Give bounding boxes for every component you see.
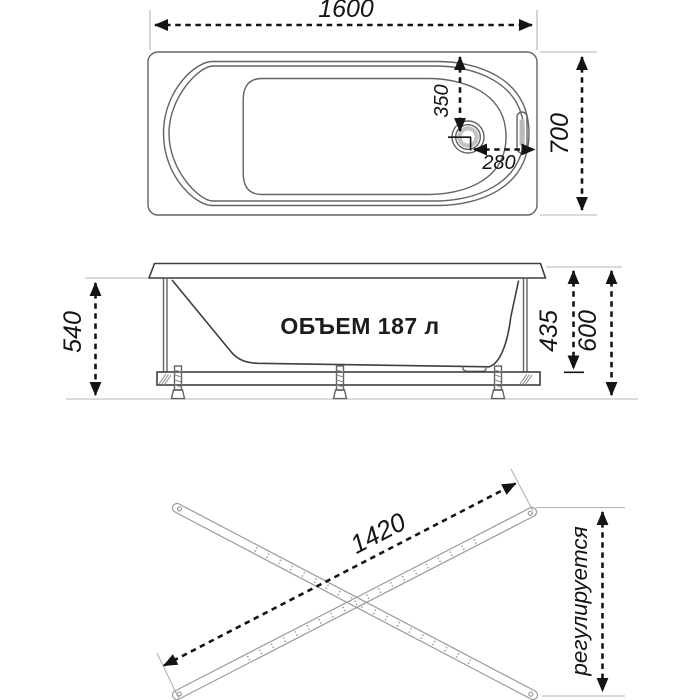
dimension-label-width: 700 bbox=[546, 113, 574, 155]
side-view: ОБЪЕМ 187 л 540 435 600 bbox=[59, 264, 638, 400]
rail-end-hole bbox=[178, 507, 182, 511]
dimension-label-drain-horizontal: 280 bbox=[481, 152, 515, 174]
dimension-label-total-height: 600 bbox=[574, 310, 602, 352]
volume-label: ОБЪЕМ 187 л bbox=[280, 313, 439, 339]
tub-plan-outline bbox=[148, 52, 537, 215]
extension-line bbox=[511, 469, 533, 511]
top-view: 1600 700 350 bbox=[148, 0, 597, 215]
dimension-label-rail-length: 1420 bbox=[345, 506, 411, 559]
dimension-drain-350: 350 bbox=[431, 57, 471, 151]
dimension-height-600: 600 bbox=[574, 271, 612, 395]
rail-end-hole bbox=[528, 511, 532, 515]
drawing-svg: 1600 700 350 bbox=[0, 0, 700, 700]
tub-rim-bar bbox=[149, 264, 546, 279]
dimension-label-apron-height: 540 bbox=[59, 311, 87, 353]
tub-outer-rim bbox=[148, 52, 537, 215]
dimension-apron-540: 540 bbox=[59, 283, 96, 395]
rail-end-hole bbox=[529, 692, 533, 696]
dimension-adjustable-height: регулируется bbox=[567, 512, 603, 691]
rail-end-hole bbox=[177, 692, 181, 696]
dimension-arrow bbox=[164, 484, 516, 666]
dimension-label-inner-depth: 435 bbox=[535, 310, 563, 352]
overflow-slot-shade bbox=[520, 119, 525, 146]
dimension-label-drain-vertical: 350 bbox=[431, 84, 453, 117]
dimension-label-adjustable: регулируется bbox=[567, 526, 592, 676]
support-frame-bar bbox=[157, 372, 540, 385]
frame-view: 1420 регулируется bbox=[157, 469, 625, 700]
dimension-drain-280: 280 bbox=[474, 150, 535, 175]
dimension-length-1600: 1600 bbox=[150, 0, 537, 50]
bathtub-technical-drawing: 1600 700 350 bbox=[0, 0, 700, 700]
dimension-width-700: 700 bbox=[540, 52, 597, 215]
dimension-rail-1420: 1420 bbox=[164, 484, 516, 666]
dimension-label-length: 1600 bbox=[318, 0, 374, 23]
